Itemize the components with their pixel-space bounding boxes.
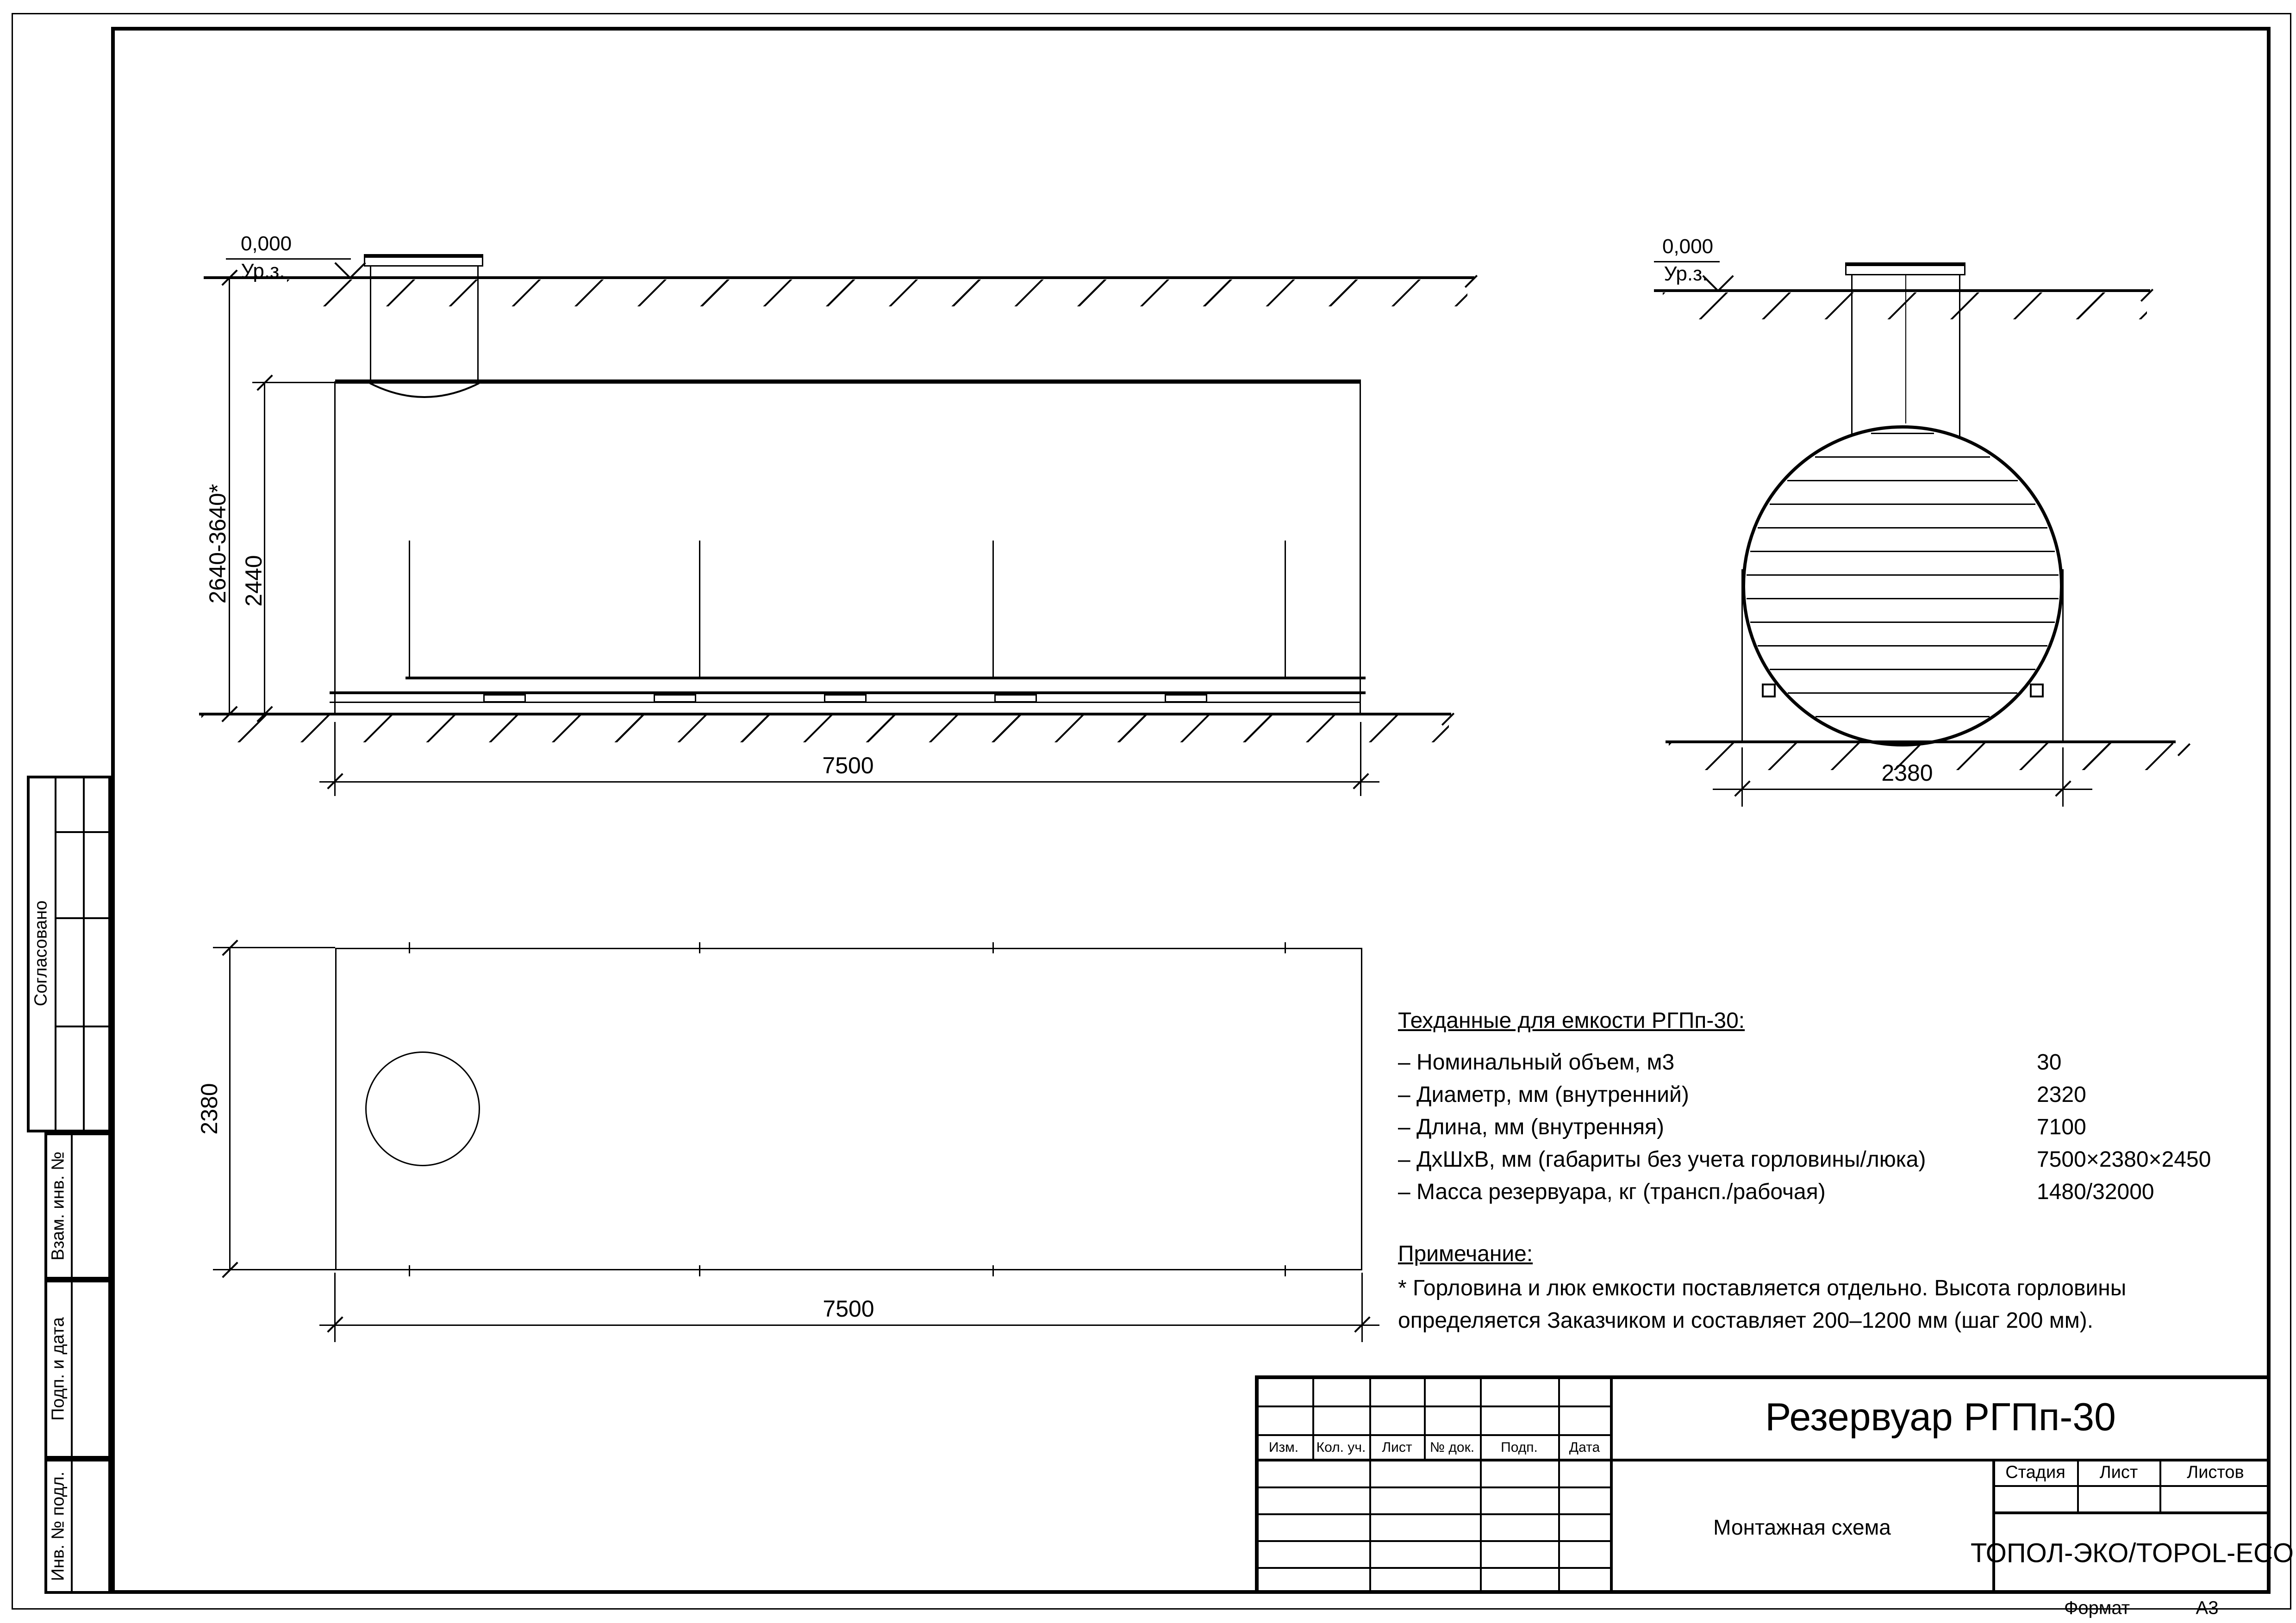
dim-line-length [319, 1325, 1379, 1326]
ground-hatching [287, 280, 1467, 306]
col-n-dok: № док. [1430, 1440, 1474, 1455]
dim-line-width [1713, 789, 2092, 790]
dim-width-text: 2380 [196, 1083, 223, 1134]
tank-rib-line [1747, 598, 2059, 599]
level-value: 0,000 [1662, 235, 1713, 258]
strap-line [699, 541, 700, 679]
tank-rib-line [1815, 456, 1990, 458]
strap-tick [992, 942, 994, 953]
tank-rib-line [1750, 551, 2055, 552]
tank-left-wall [334, 381, 336, 715]
tech-row-value: 30 [2037, 1050, 2061, 1075]
strap-line [1285, 541, 1286, 679]
strap-tick [1285, 942, 1286, 953]
support-frame-right [2062, 569, 2064, 743]
strap-line [992, 541, 994, 679]
neck-left-wall [370, 267, 371, 383]
col-kol-uch: Кол. уч. [1316, 1440, 1366, 1455]
tank-rib-line [1750, 622, 2055, 623]
strap-tick [992, 1265, 994, 1276]
tech-data-title: Техданные для емкости РГПп-30: [1398, 1008, 1745, 1033]
ground-hatching [1663, 292, 2147, 319]
tech-row-value: 2320 [2037, 1082, 2086, 1107]
document-title: Резервуар РГПп-30 [1765, 1395, 2116, 1440]
tank-plan-outline [335, 948, 1362, 1270]
tank-rib-line [1787, 480, 2017, 481]
strap-tick [699, 942, 700, 953]
support-foot [483, 694, 526, 703]
strap-tick [409, 1265, 410, 1276]
dim-depth-text: 2640-3640* [204, 484, 231, 604]
tank-rib-line [1758, 645, 2047, 647]
dim-length-text: 7500 [823, 1295, 874, 1322]
neck-saddle-arc [369, 382, 480, 407]
manhole-circle [365, 1051, 480, 1166]
tech-row-label: – Длина, мм (внутренняя) [1398, 1114, 1664, 1140]
sheet-label: Лист [2100, 1463, 2138, 1483]
col-izm: Изм. [1269, 1440, 1298, 1455]
neck-cap [364, 254, 483, 267]
support-foot [1165, 694, 1207, 703]
neck-cap [1845, 262, 1965, 275]
approved-label: Согласовано [31, 901, 51, 1006]
neck-left-wall [1851, 275, 1853, 436]
tank-rib-line [1758, 527, 2047, 529]
strap-tick [409, 942, 410, 953]
support-foot [994, 694, 1037, 703]
dim-ext-line [334, 1273, 336, 1342]
level-label: Ур.з. [1664, 262, 1708, 286]
tech-row-value: 7100 [2037, 1114, 2086, 1140]
dim-line-length [319, 781, 1379, 783]
strap-line [409, 541, 410, 679]
tank-rib-line [1770, 669, 2035, 670]
dim-width-text: 2380 [1881, 759, 1933, 786]
tech-row-value: 1480/32000 [2037, 1179, 2154, 1205]
drawing-sheet: 0,000 Ур.з. 2640-3640* 2440 [0, 0, 2296, 1623]
inv-orig-label: Инв. № подл. [49, 1472, 69, 1581]
support-foot [654, 694, 696, 703]
ground-line [1654, 289, 2150, 292]
dim-ext-line [1360, 722, 1361, 796]
tech-row-value: 7500×2380×2450 [2037, 1147, 2211, 1172]
tank-shell-circle [1742, 425, 2063, 746]
tank-right-wall [1360, 381, 1361, 715]
col-data: Дата [1569, 1440, 1600, 1455]
dim-line-width [229, 948, 231, 1270]
support-band-top [406, 677, 1366, 679]
tank-rib-line [1770, 504, 2036, 505]
tech-row-label: – Номинальный объем, м3 [1398, 1050, 1674, 1075]
tech-row-label: – Масса резервуара, кг (трансп./рабочая) [1398, 1179, 1826, 1205]
level-label: Ур.з. [241, 260, 285, 283]
anchor-square [1762, 684, 1776, 697]
strap-tick [1285, 1265, 1286, 1276]
dim-ext-line [334, 722, 336, 796]
sign-date-label: Подп. и дата [49, 1317, 69, 1421]
scheme-name: Монтажная схема [1713, 1515, 1891, 1540]
note-line: * Горловина и люк емкости поставляется о… [1398, 1275, 2126, 1301]
dim-ext-line [1361, 1273, 1363, 1342]
level-value: 0,000 [241, 232, 292, 255]
support-frame-left [1741, 569, 1743, 743]
neck-right-wall [477, 267, 479, 383]
company-name: ТОПОЛ-ЭКО/TOPOL-ECO [1971, 1538, 2294, 1569]
stage-label: Стадия [2005, 1463, 2065, 1483]
neck-right-wall [1959, 275, 1960, 436]
support-foot [824, 694, 867, 703]
tank-rib-line [1871, 433, 1934, 434]
dim-ext-line [1741, 747, 1743, 807]
dim-height-text: 2440 [240, 555, 267, 606]
format-label: Формат [2064, 1598, 2130, 1619]
dim-length-text: 7500 [822, 752, 873, 779]
format-value: А3 [2196, 1598, 2219, 1619]
ground-line [204, 276, 1474, 279]
replace-inv-label: Взам. инв. № [49, 1151, 69, 1260]
strap-tick [699, 1265, 700, 1276]
tech-row-label: – ДхШхВ, мм (габариты без учета горловин… [1398, 1147, 1926, 1172]
tank-rib-line [1788, 692, 2017, 694]
tech-row-label: – Диаметр, мм (внутренний) [1398, 1082, 1689, 1107]
tank-rib-line [1747, 574, 2059, 576]
neck-center-line [1905, 275, 1906, 423]
pit-bottom-hatching [201, 715, 1449, 742]
col-list: Лист [1382, 1440, 1412, 1455]
dim-line-height [264, 383, 265, 715]
dim-ext-line [2062, 747, 2064, 807]
note-title: Примечание: [1398, 1241, 1533, 1267]
col-podp: Подп. [1501, 1440, 1538, 1455]
anchor-square [2030, 684, 2044, 697]
sheets-label: Листов [2187, 1463, 2244, 1483]
note-line: определяется Заказчиком и составляет 200… [1398, 1308, 2093, 1333]
tank-rib-line [1816, 716, 1990, 717]
tank-top-line [335, 379, 1361, 384]
